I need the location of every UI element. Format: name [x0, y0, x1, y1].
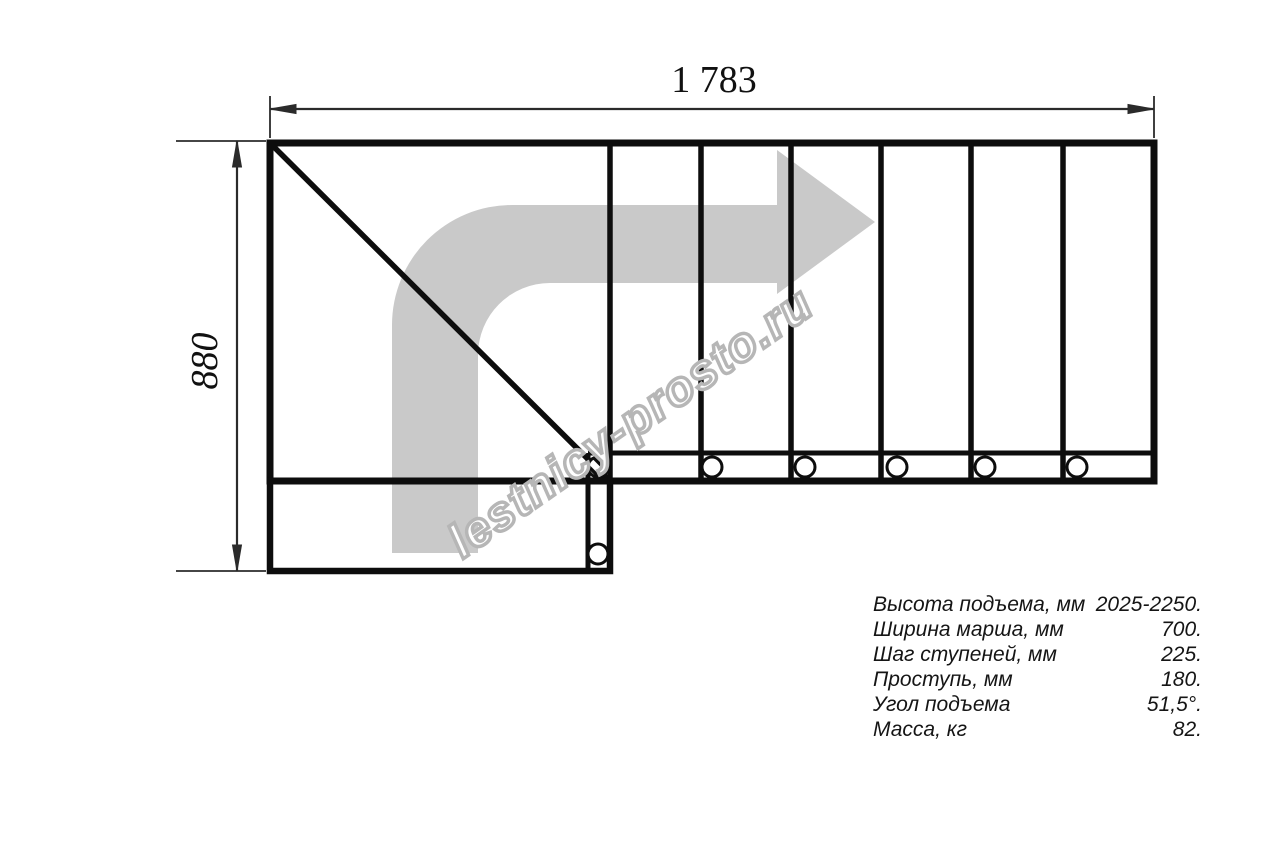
spec-value: 51,5°. — [1147, 692, 1202, 717]
spec-label: Масса, кг — [873, 717, 967, 742]
dimension-depth-label: 880 — [183, 303, 229, 419]
spec-row: Угол подъема 51,5°. — [873, 692, 1202, 717]
baluster-circle — [588, 544, 608, 564]
spec-label: Ширина марша, мм — [873, 617, 1064, 642]
spec-value: 700. — [1161, 617, 1202, 642]
spec-label: Проступь, мм — [873, 667, 1013, 692]
dim-arrow-left — [270, 105, 296, 114]
staircase-drawing-page: 1 783 880 lestnicy-prosto.ru Высота подъ… — [0, 0, 1280, 853]
baluster-circle — [975, 457, 995, 477]
spec-value: 180. — [1161, 667, 1202, 692]
spec-value: 225. — [1161, 642, 1202, 667]
baluster-circle — [887, 457, 907, 477]
baluster-circle — [1067, 457, 1087, 477]
spec-label: Высота подъема, мм — [873, 592, 1085, 617]
spec-label: Шаг ступеней, мм — [873, 642, 1057, 667]
direction-arrow — [392, 150, 875, 553]
baluster-circle — [702, 457, 722, 477]
dimension-width — [270, 96, 1154, 138]
dim-arrow-down — [233, 545, 242, 571]
spec-row: Ширина марша, мм 700. — [873, 617, 1202, 642]
spec-row: Масса, кг 82. — [873, 717, 1202, 742]
dimension-width-label: 1 783 — [614, 58, 814, 102]
spec-value: 82. — [1173, 717, 1202, 742]
dim-arrow-right — [1128, 105, 1154, 114]
spec-row: Шаг ступеней, мм 225. — [873, 642, 1202, 667]
spec-label: Угол подъема — [873, 692, 1010, 717]
spec-value: 2025-2250. — [1096, 592, 1202, 617]
baluster-circle — [795, 457, 815, 477]
spec-table: Высота подъема, мм 2025-2250. Ширина мар… — [873, 592, 1202, 742]
spec-row: Высота подъема, мм 2025-2250. — [873, 592, 1202, 617]
spec-row: Проступь, мм 180. — [873, 667, 1202, 692]
dim-arrow-up — [233, 141, 242, 167]
